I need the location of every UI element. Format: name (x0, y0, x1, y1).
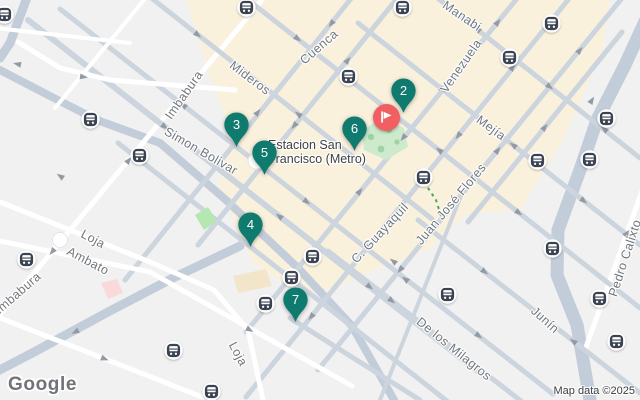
transit-stop[interactable] (237, 0, 256, 17)
hospital-area (101, 279, 123, 299)
transit-stop[interactable] (414, 168, 433, 187)
transit-stop[interactable] (17, 250, 36, 269)
map-marker-5[interactable]: 5 (251, 139, 278, 177)
bus-icon (607, 332, 626, 351)
transit-stop[interactable] (580, 150, 599, 169)
oneway-arrow-icon (80, 73, 89, 80)
bus-icon (528, 151, 547, 170)
bus-icon (17, 250, 36, 269)
bus-icon (597, 109, 616, 128)
svg-text:5: 5 (260, 145, 267, 160)
transit-stop[interactable] (500, 48, 519, 67)
svg-text:3: 3 (232, 117, 239, 132)
map-base-layer (0, 0, 640, 400)
transit-stop[interactable] (202, 382, 221, 400)
transit-stop[interactable] (528, 151, 547, 170)
transit-stop[interactable] (393, 0, 412, 17)
bus-icon (130, 146, 149, 165)
transit-stop[interactable] (438, 285, 457, 304)
map-marker-2[interactable]: 2 (390, 77, 417, 115)
transit-stop[interactable] (339, 67, 358, 86)
map-marker-3[interactable]: 3 (223, 111, 250, 149)
transit-stop[interactable] (303, 247, 322, 266)
svg-text:4: 4 (246, 217, 253, 232)
bus-icon (81, 110, 100, 129)
svg-text:6: 6 (350, 121, 357, 136)
google-logo[interactable]: Google (8, 374, 77, 396)
bus-icon (256, 294, 275, 313)
roundabout (53, 233, 68, 248)
transit-stop[interactable] (597, 109, 616, 128)
transit-stop[interactable] (256, 294, 275, 313)
map-canvas[interactable]: ImbaburaMiderosCuencaManabiVenezuelaMejí… (0, 0, 640, 400)
bus-icon (0, 5, 14, 24)
bus-icon (414, 168, 433, 187)
map-marker-6[interactable]: 6 (341, 115, 368, 153)
bus-icon (542, 14, 561, 33)
bus-icon (164, 341, 183, 360)
bus-icon (282, 268, 301, 287)
bus-icon (543, 239, 562, 258)
transit-stop[interactable] (81, 110, 100, 129)
park-tree (368, 134, 374, 140)
bus-icon (303, 247, 322, 266)
station-label-line2: Francisco (Metro) (268, 152, 366, 166)
map-attribution[interactable]: Map data ©2025 (554, 385, 636, 397)
bus-icon (393, 0, 412, 17)
transit-stop[interactable] (607, 332, 626, 351)
transit-stop[interactable] (282, 268, 301, 287)
bus-icon (237, 0, 256, 17)
bus-icon (202, 382, 221, 400)
map-marker-4[interactable]: 4 (237, 211, 264, 249)
bus-icon (590, 289, 609, 308)
map-marker-7[interactable]: 7 (282, 286, 309, 324)
transit-stop[interactable] (130, 146, 149, 165)
svg-text:2: 2 (399, 83, 406, 98)
park-tree (378, 146, 385, 153)
bus-icon (580, 150, 599, 169)
transit-stop[interactable] (164, 341, 183, 360)
transit-stop[interactable] (542, 14, 561, 33)
bus-icon (500, 48, 519, 67)
bus-icon (339, 67, 358, 86)
svg-text:7: 7 (291, 292, 298, 307)
transit-stop[interactable] (543, 239, 562, 258)
transit-stop[interactable] (0, 5, 14, 24)
building-block (233, 269, 272, 293)
transit-stop[interactable] (590, 289, 609, 308)
bus-icon (438, 285, 457, 304)
